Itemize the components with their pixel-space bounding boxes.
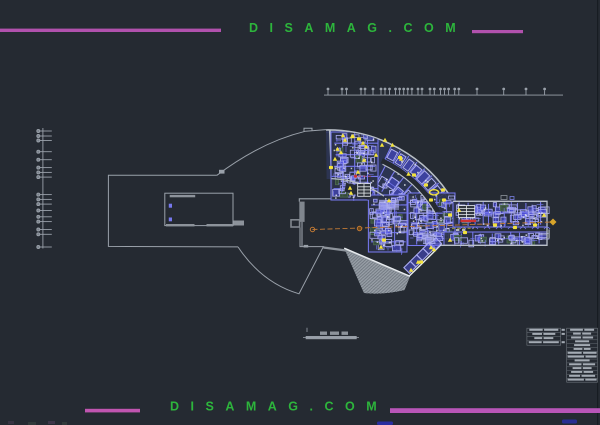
svg-text:DISAMAG.COM: DISAMAG.COM <box>249 21 467 35</box>
svg-text:DISAMAG.COM: DISAMAG.COM <box>170 400 388 414</box>
